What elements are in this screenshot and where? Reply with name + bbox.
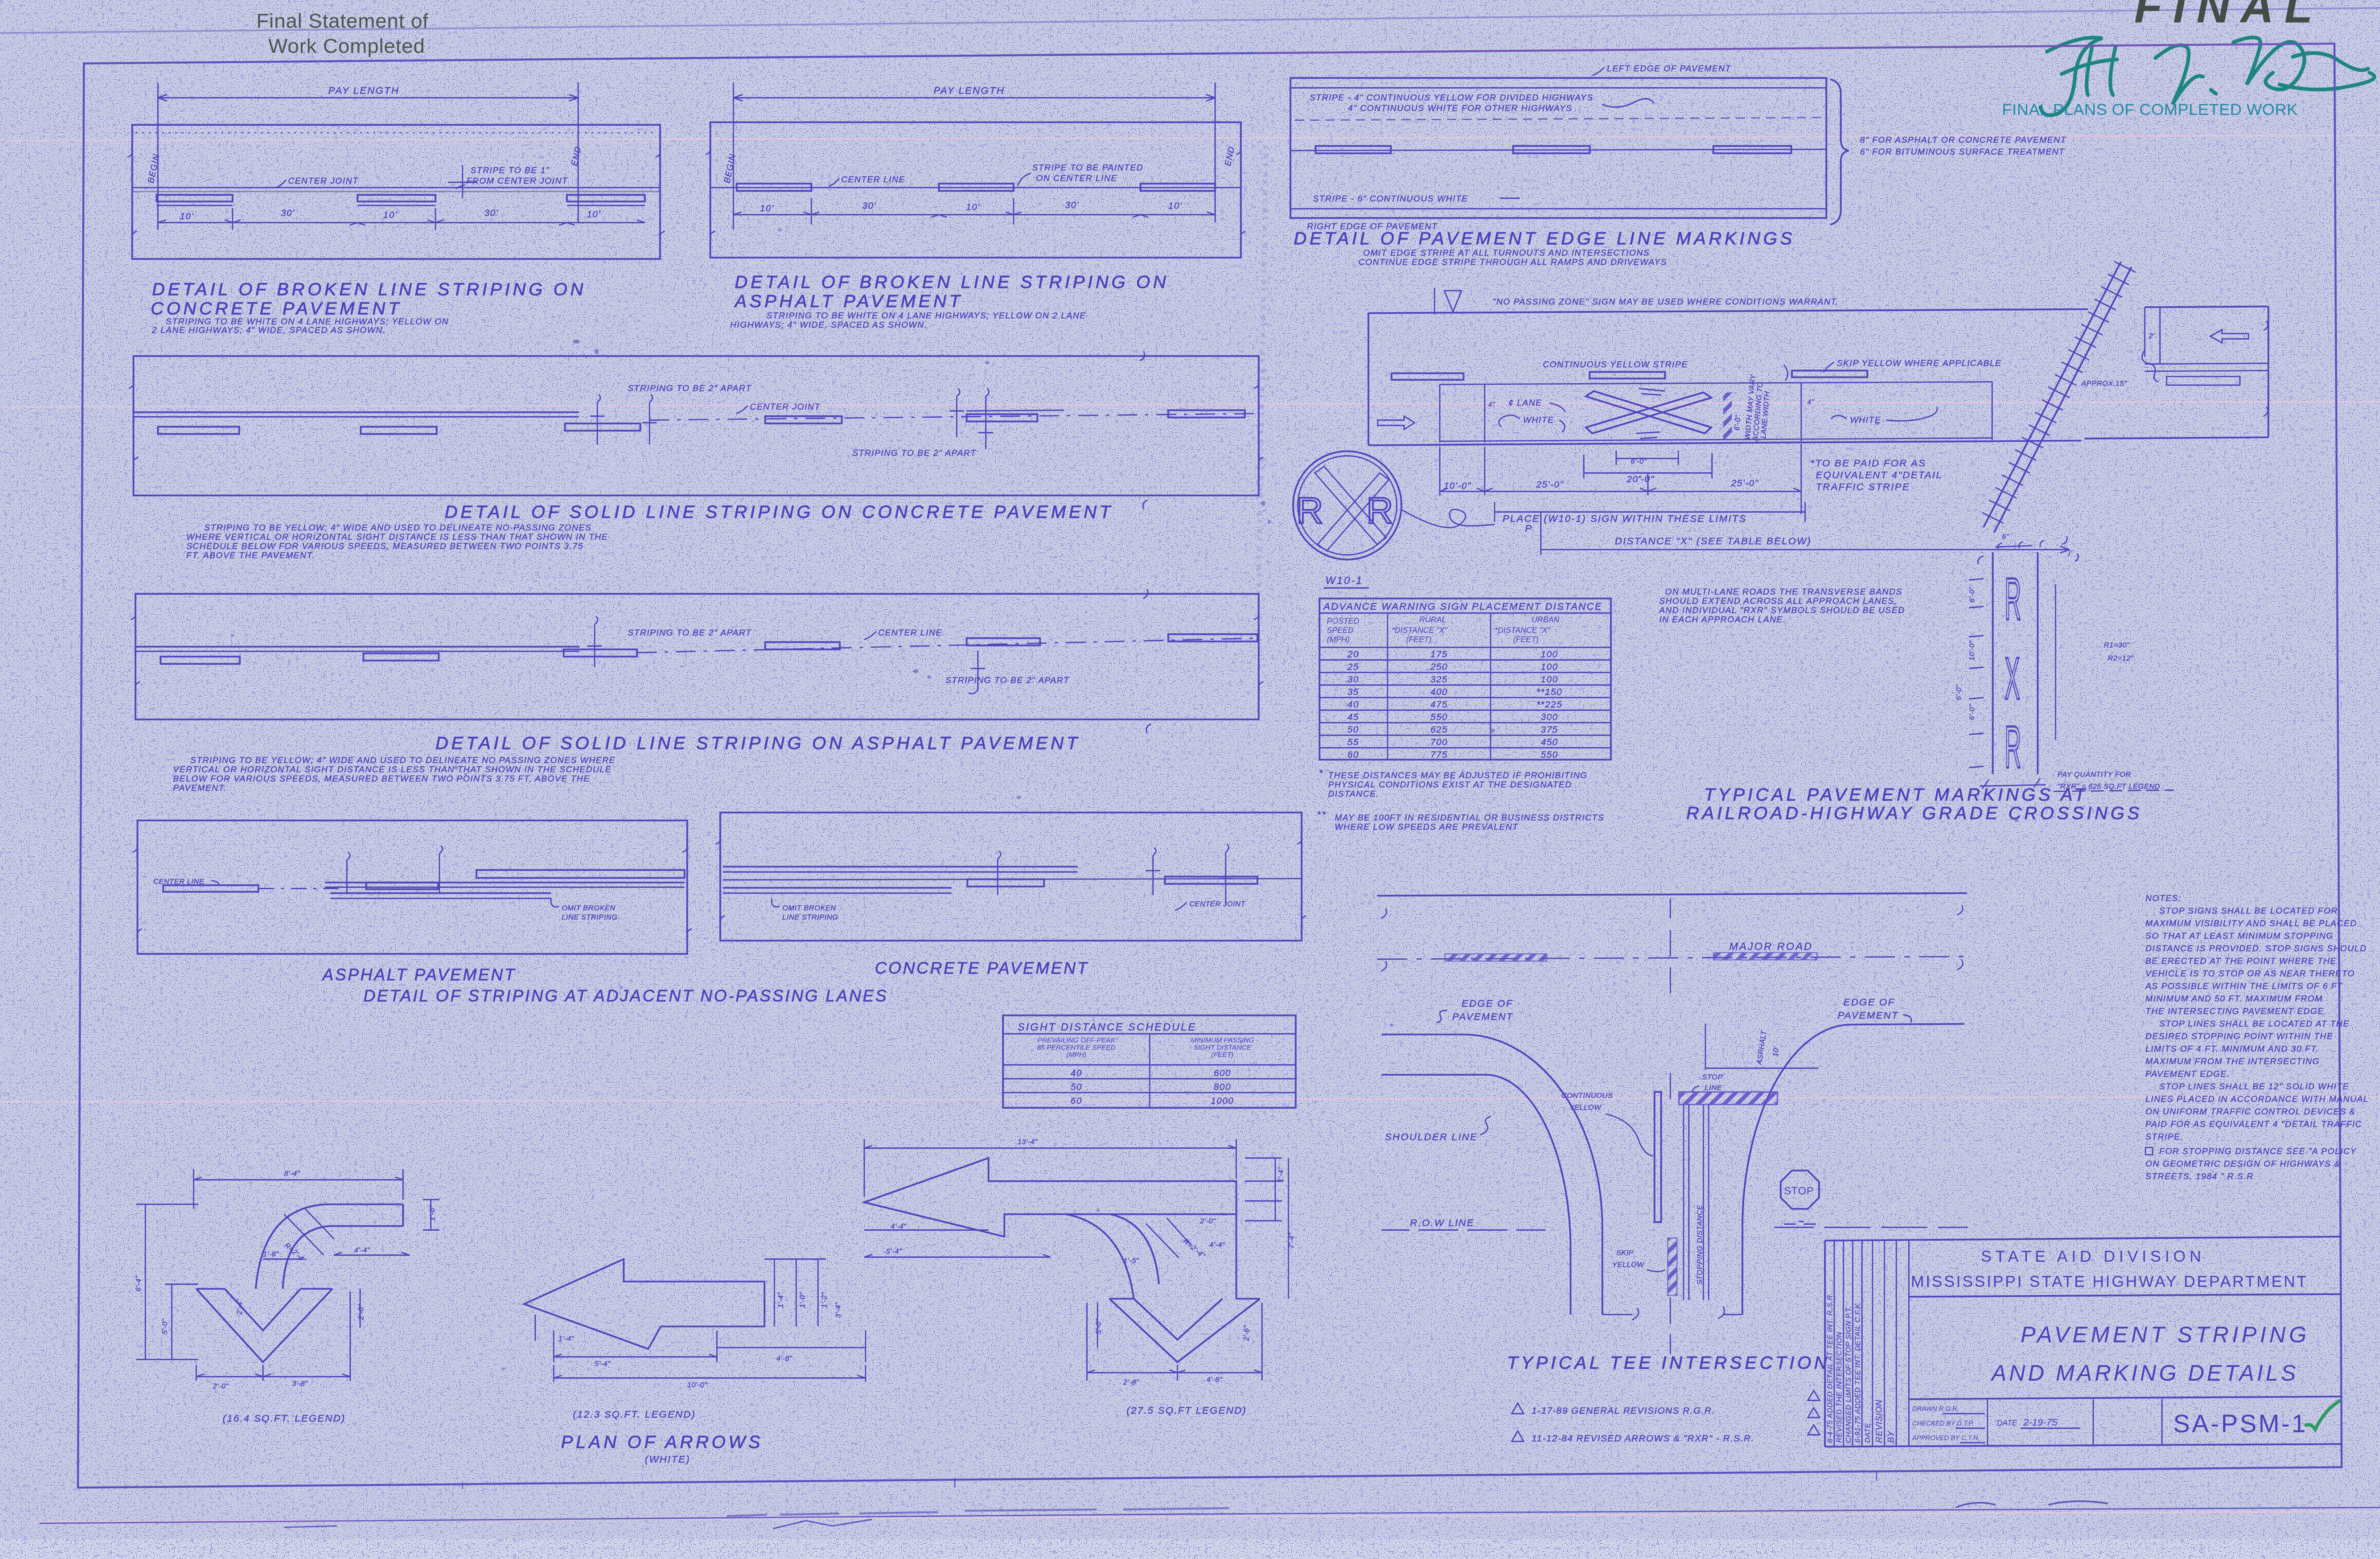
svg-text:*: * <box>1319 768 1323 779</box>
svg-text:2'-0": 2'-0" <box>212 1383 229 1391</box>
svg-text:6'-0": 6'-0" <box>1968 586 1976 602</box>
svg-text:SCHEDULE BELOW FOR VARIOUS SPE: SCHEDULE BELOW FOR VARIOUS SPEEDS, MEASU… <box>186 541 583 551</box>
svg-text:STRIPING TO BE WHITE ON 4 LANE: STRIPING TO BE WHITE ON 4 LANE HIGHWAYS;… <box>766 310 1086 320</box>
svg-text:R: R <box>1366 489 1393 531</box>
svg-text:10': 10' <box>1168 200 1183 211</box>
svg-text:STRIPING TO BE YELLOW; 4" WIDE: STRIPING TO BE YELLOW; 4" WIDE AND USED … <box>204 523 591 532</box>
svg-text:YELLOW: YELLOW <box>1569 1104 1602 1112</box>
svg-text:5'-4": 5'-4" <box>595 1360 611 1368</box>
svg-text:NOTES:: NOTES: <box>2145 893 2181 903</box>
svg-text:(FEET): (FEET) <box>1513 635 1539 644</box>
svg-text:4": 4" <box>1807 398 1815 406</box>
svg-text:25: 25 <box>1347 661 1359 672</box>
svg-text:40: 40 <box>1070 1068 1082 1078</box>
svg-text:6-91-75 ADDED TEE INT. DETAIL: 6-91-75 ADDED TEE INT. DETAIL C.F.K. <box>1854 1301 1862 1443</box>
svg-text:PAVEMENT: PAVEMENT <box>1452 1011 1514 1023</box>
svg-text:3'-8": 3'-8" <box>292 1380 309 1388</box>
svg-text:ASPHALT PAVEMENT: ASPHALT PAVEMENT <box>321 966 516 984</box>
svg-text:1'-0": 1'-0" <box>799 1291 807 1308</box>
svg-text:10': 10' <box>760 203 774 213</box>
svg-text:CENTER LINE: CENTER LINE <box>841 174 905 184</box>
svg-text:DISTANCE.: DISTANCE. <box>1328 789 1379 799</box>
svg-text:¢ LANE: ¢ LANE <box>1508 398 1542 408</box>
svg-text:4" CONTINUOUS WHITE FOR OTHER: 4" CONTINUOUS WHITE FOR OTHER HIGHWAYS <box>1348 103 1573 113</box>
svg-text:R.O.W LINE: R.O.W LINE <box>1410 1217 1475 1229</box>
svg-text:STOPPING DISTANCE: STOPPING DISTANCE <box>1696 1204 1704 1285</box>
svg-text:375: 375 <box>1541 724 1558 735</box>
svg-text:R2=12": R2=12" <box>2108 655 2134 663</box>
svg-text:YELLOW: YELLOW <box>1612 1261 1645 1269</box>
svg-text:CHANGED LIMITS OF STOP SIGN P: CHANGED LIMITS OF STOP SIGN P.T. <box>1845 1305 1853 1443</box>
svg-text:STRIPE - 4" CONTINUOUS YELLOW: STRIPE - 4" CONTINUOUS YELLOW FOR DIVIDE… <box>1310 92 1594 102</box>
svg-text:775: 775 <box>1431 749 1448 760</box>
svg-text:(MPH): (MPH) <box>1327 635 1350 644</box>
svg-text:4'-4": 4'-4" <box>891 1223 907 1231</box>
svg-text:PAY QUANTITY FOR: PAY QUANTITY FOR <box>2058 771 2131 779</box>
svg-text:BELOW FOR VARIOUS SPEEDS, MEAS: BELOW FOR VARIOUS SPEEDS, MEASURED BETWE… <box>173 774 590 783</box>
svg-text:CONTINUE EDGE STRIPE THROUGH A: CONTINUE EDGE STRIPE THROUGH ALL RAMPS A… <box>1358 257 1667 267</box>
svg-text:PAVEMENT: PAVEMENT <box>1838 1010 1899 1021</box>
svg-text:R: R <box>2005 714 2021 780</box>
svg-text:600: 600 <box>1214 1068 1231 1078</box>
svg-text:STRIPE.: STRIPE. <box>2145 1132 2184 1142</box>
svg-text:DETAIL OF BROKEN LINE STRIPING: DETAIL OF BROKEN LINE STRIPING ON <box>152 279 586 299</box>
svg-text:100: 100 <box>1541 674 1558 684</box>
svg-text:4'-4": 4'-4" <box>1209 1241 1226 1249</box>
svg-text:**: ** <box>1317 809 1327 820</box>
svg-text:FROM CENTER JOINT: FROM CENTER JOINT <box>466 176 568 186</box>
svg-text:25'-0": 25'-0" <box>1730 478 1759 488</box>
svg-text:APPROVED BY C.T.H.: APPROVED BY C.T.H. <box>1912 1435 1980 1442</box>
svg-text:175: 175 <box>1431 649 1448 659</box>
svg-text:DESIRED STOPPING POINT WITHIN: DESIRED STOPPING POINT WITHIN THE <box>2145 1031 2333 1041</box>
svg-text:ASPHALT PAVEMENT: ASPHALT PAVEMENT <box>733 291 963 311</box>
svg-text:10': 10' <box>1771 1046 1781 1058</box>
svg-text:MAY BE 100FT IN RESIDENTIAL OR: MAY BE 100FT IN RESIDENTIAL OR BUSINESS … <box>1335 813 1604 822</box>
svg-text:SKIP YELLOW WHERE APPLICABLE: SKIP YELLOW WHERE APPLICABLE <box>1837 358 2001 368</box>
svg-text:(16.4 SQ.FT. LEGEND): (16.4 SQ.FT. LEGEND) <box>223 1413 346 1424</box>
svg-text:RAILROAD-HIGHWAY GRADE CROSSIN: RAILROAD-HIGHWAY GRADE CROSSINGS <box>1686 803 2142 823</box>
svg-text:3'-4": 3'-4" <box>835 1301 842 1318</box>
svg-text:20'-0": 20'-0" <box>1626 474 1655 484</box>
svg-text:P: P <box>1525 523 1533 534</box>
svg-text:PAY LENGTH: PAY LENGTH <box>934 85 1005 96</box>
svg-text:2'-4": 2'-4" <box>236 1298 244 1315</box>
svg-text:AS POSSIBLE WITHIN THE LIMITS: AS POSSIBLE WITHIN THE LIMITS OF 6 FT <box>2145 981 2343 991</box>
svg-text:ADVANCE WARNING SIGN PLACEMENT: ADVANCE WARNING SIGN PLACEMENT DISTANCE <box>1323 601 1602 612</box>
svg-text:URBAN: URBAN <box>1532 615 1559 624</box>
svg-text:THESE DISTANCES MAY BE ADJUSTE: THESE DISTANCES MAY BE ADJUSTED IF PROHI… <box>1328 770 1588 780</box>
svg-text:6'-4": 6'-4" <box>135 1275 143 1291</box>
svg-text:MAJOR ROAD: MAJOR ROAD <box>1729 941 1813 953</box>
svg-text:WHERE LOW SPEEDS ARE PREVALENT: WHERE LOW SPEEDS ARE PREVALENT <box>1335 822 1518 832</box>
svg-text:100: 100 <box>1541 649 1558 659</box>
svg-text:STATE AID DIVISION: STATE AID DIVISION <box>1981 1248 2205 1266</box>
svg-text:10': 10' <box>180 211 194 221</box>
svg-text:CHECKED BY D.T.P.: CHECKED BY D.T.P. <box>1912 1420 1974 1428</box>
svg-text:ON GEOMETRIC DESIGN OF HIGHWAY: ON GEOMETRIC DESIGN OF HIGHWAYS & <box>2145 1159 2340 1169</box>
svg-text:1'-4": 1'-4" <box>1277 1166 1285 1182</box>
svg-text:60: 60 <box>1347 749 1359 760</box>
svg-text:4'-4": 4'-4" <box>354 1247 371 1254</box>
svg-text:DISTANCE IS PROVIDED. STOP SIG: DISTANCE IS PROVIDED. STOP SIGNS SHOULD <box>2145 943 2367 953</box>
svg-text:MAXIMUM VISIBILITY AND SHALL B: MAXIMUM VISIBILITY AND SHALL BE PLACED <box>2145 918 2357 928</box>
svg-text:STRIPING TO BE YELLOW; 4" WIDE: STRIPING TO BE YELLOW; 4" WIDE AND USED … <box>190 755 616 765</box>
svg-text:SO THAT AT LEAST MINIMUM STOPP: SO THAT AT LEAST MINIMUM STOPPING <box>2145 931 2334 941</box>
svg-text:FOR STOPPING DISTANCE SEE "A P: FOR STOPPING DISTANCE SEE "A POLICY <box>2159 1146 2357 1156</box>
svg-text:1'-2": 1'-2" <box>821 1291 829 1308</box>
svg-text:475: 475 <box>1431 699 1448 709</box>
svg-text:WHITE: WHITE <box>1523 415 1554 425</box>
svg-text:VERTICAL OR HORIZONTAL SIGHT D: VERTICAL OR HORIZONTAL SIGHT DISTANCE IS… <box>173 764 612 774</box>
svg-text:450: 450 <box>1541 737 1558 747</box>
svg-text:4": 4" <box>1488 401 1496 409</box>
svg-text:WHERE VERTICAL OR HORIZONTAL S: WHERE VERTICAL OR HORIZONTAL SIGHT DISTA… <box>186 532 608 542</box>
svg-text:"NO PASSING ZONE" SIGN MAY BE: "NO PASSING ZONE" SIGN MAY BE USED WHERE… <box>1493 297 1839 307</box>
svg-text:CENTER JOINT: CENTER JOINT <box>1189 900 1246 908</box>
svg-text:ON UNIFORM TRAFFIC CONTROL DEV: ON UNIFORM TRAFFIC CONTROL DEVICES & <box>2145 1106 2356 1116</box>
svg-text:X: X <box>2005 645 2020 711</box>
svg-text:PAY LENGTH: PAY LENGTH <box>328 85 400 96</box>
svg-text:50: 50 <box>1070 1081 1082 1092</box>
svg-text:APPROX.15°: APPROX.15° <box>2081 380 2128 388</box>
svg-text:10': 10' <box>966 201 981 212</box>
svg-text:STOP: STOP <box>1702 1073 1723 1081</box>
svg-text:6'-0": 6'-0" <box>1733 414 1742 431</box>
svg-text:AND INDIVIDUAL "RXR" SYMBOLS S: AND INDIVIDUAL "RXR" SYMBOLS SHOULD BE U… <box>1658 605 1905 615</box>
svg-text:"RXR" = 625 SQ.FT LEGEND: "RXR" = 625 SQ.FT LEGEND <box>2058 783 2160 791</box>
svg-text:STRIPING TO BE 2" APART: STRIPING TO BE 2" APART <box>852 448 977 458</box>
svg-text:STOP SIGNS SHALL BE LOCATED FO: STOP SIGNS SHALL BE LOCATED FOR <box>2159 906 2338 916</box>
svg-text:35: 35 <box>1347 686 1359 697</box>
svg-text:325: 325 <box>1431 674 1448 684</box>
svg-text:300: 300 <box>1541 711 1558 722</box>
svg-text:1'-0": 1'-0" <box>429 1204 437 1221</box>
svg-text:CENTER LINE: CENTER LINE <box>878 628 942 637</box>
svg-text:STRIPE TO BE 1": STRIPE TO BE 1" <box>470 165 550 175</box>
svg-text:7'-4": 7'-4" <box>1288 1232 1296 1249</box>
svg-text:LINES PLACED IN ACCORDANCE WIT: LINES PLACED IN ACCORDANCE WITH MANUAL <box>2145 1094 2369 1104</box>
svg-text:550: 550 <box>1541 749 1558 760</box>
svg-text:1'-5": 1'-5" <box>1123 1257 1140 1265</box>
svg-text:30': 30' <box>1065 199 1080 210</box>
svg-text:STRIPE - 6" CONTINUOUS WHITE: STRIPE - 6" CONTINUOUS WHITE <box>1313 194 1468 203</box>
svg-text:FINAL PLANS OF COMPLETED WORK: FINAL PLANS OF COMPLETED WORK <box>2002 101 2298 119</box>
svg-text:EQUIVALENT 4"DETAIL: EQUIVALENT 4"DETAIL <box>1816 470 1943 481</box>
svg-text:(12.3 SQ.FT. LEGEND): (12.3 SQ.FT. LEGEND) <box>573 1409 696 1420</box>
svg-text:2'-8": 2'-8" <box>1123 1379 1140 1387</box>
svg-text:EDGE OF: EDGE OF <box>1843 997 1895 1008</box>
svg-text:1'-4": 1'-4" <box>777 1291 785 1308</box>
svg-text:CENTER JOINT: CENTER JOINT <box>288 176 359 186</box>
svg-text:2'-0": 2'-0" <box>357 1303 365 1321</box>
svg-text:2-19-75: 2-19-75 <box>2023 1417 2058 1428</box>
svg-text:4'-8": 4'-8" <box>1207 1376 1223 1384</box>
svg-text:STOP: STOP <box>1784 1186 1814 1197</box>
svg-text:11-12-84 REVISED ARROWS & "RX: 11-12-84 REVISED ARROWS & "RXR" - R.S.R. <box>1532 1433 1754 1443</box>
svg-text:SHOULD EXTEND ACROSS ALL APPRO: SHOULD EXTEND ACROSS ALL APPROACH LANES, <box>1659 596 1898 606</box>
svg-text:2'-0": 2'-0" <box>1199 1217 1216 1225</box>
svg-text:6" FOR BITUMINOUS SURFACE TREA: 6" FOR BITUMINOUS SURFACE TREATMENT <box>1860 147 2065 157</box>
svg-text:(WHITE): (WHITE) <box>645 1454 690 1465</box>
svg-text:HIGHWAYS; 4" WIDE, SPACED AS S: HIGHWAYS; 4" WIDE, SPACED AS SHOWN. <box>730 320 927 330</box>
svg-text:SPEED: SPEED <box>1327 626 1354 635</box>
svg-text:*DISTANCE "X": *DISTANCE "X" <box>1392 626 1448 635</box>
svg-text:FINAL: FINAL <box>2134 0 2323 32</box>
svg-text:DETAIL OF SOLID LINE STRIPING: DETAIL OF SOLID LINE STRIPING ON ASPHALT… <box>435 733 1080 753</box>
svg-text:STRIPING TO BE 2" APART: STRIPING TO BE 2" APART <box>628 628 752 637</box>
svg-text:TRAFFIC STRIPE: TRAFFIC STRIPE <box>1816 482 1910 493</box>
svg-text:8'-4": 8'-4" <box>284 1170 301 1178</box>
svg-text:5'-0": 5'-0" <box>1095 1318 1103 1334</box>
svg-text:LIMITS OF 4 FT. MINIMUM AND 30: LIMITS OF 4 FT. MINIMUM AND 30 FT. <box>2145 1044 2319 1054</box>
svg-text:6'-0": 6'-0" <box>1955 684 1963 700</box>
svg-text:CONCRETE PAVEMENT: CONCRETE PAVEMENT <box>875 959 1089 978</box>
svg-text:(FEET): (FEET) <box>1211 1051 1234 1059</box>
svg-text:10'-0": 10'-0" <box>1444 480 1471 491</box>
svg-text:8-4-75 ADDED DETAIL AT TEE INT: 8-4-75 ADDED DETAIL AT TEE INT. R.S.R. <box>1826 1293 1834 1443</box>
svg-text:W10-1: W10-1 <box>1325 575 1363 587</box>
svg-text:10'-0": 10'-0" <box>1968 640 1976 661</box>
svg-text:45: 45 <box>1347 711 1359 722</box>
svg-text:MISSISSIPPI STATE HIGHWAY D: MISSISSIPPI STATE HIGHWAY DEPARTMENT <box>1911 1273 2308 1291</box>
svg-text:30': 30' <box>862 200 877 211</box>
svg-text:ON MULTI-LANE ROADS THE TRANSV: ON MULTI-LANE ROADS THE TRANSVERSE BANDS <box>1665 587 1902 597</box>
svg-text:LINE STRIPING: LINE STRIPING <box>782 914 838 922</box>
svg-text:REVISION: REVISION <box>1874 1399 1884 1443</box>
svg-text:BY: BY <box>1886 1430 1896 1443</box>
svg-text:)′: )′ <box>2067 549 2073 557</box>
svg-text:DISTANCE "X" (SEE TABLE BELOW): DISTANCE "X" (SEE TABLE BELOW) <box>1615 536 1812 547</box>
svg-text:PAVEMENT.: PAVEMENT. <box>173 783 227 793</box>
svg-text:6": 6" <box>2002 533 2010 541</box>
svg-text:OMIT EDGE STRIPE AT ALL TURNOU: OMIT EDGE STRIPE AT ALL TURNOUTS AND INT… <box>1363 248 1650 258</box>
svg-text:30': 30' <box>281 207 295 218</box>
svg-text:60: 60 <box>1070 1095 1082 1106</box>
svg-text:STRIPING TO BE 2" APART: STRIPING TO BE 2" APART <box>628 383 752 393</box>
svg-text:10': 10' <box>383 209 398 220</box>
svg-text:30: 30 <box>1347 674 1359 684</box>
svg-text:55: 55 <box>1347 737 1359 747</box>
svg-text:FT. ABOVE THE PAVEMENT.: FT. ABOVE THE PAVEMENT. <box>186 550 315 560</box>
svg-text:(FEET): (FEET) <box>1406 635 1432 644</box>
svg-text:STRIPING TO BE 2" APART: STRIPING TO BE 2" APART <box>946 675 1070 685</box>
svg-text:STOP LINES SHALL BE 12" SOLID: STOP LINES SHALL BE 12" SOLID WHITE <box>2159 1081 2349 1091</box>
svg-text:OMIT BROKEN: OMIT BROKEN <box>782 904 836 912</box>
svg-text:TYPICAL TEE INTERSECTION: TYPICAL TEE INTERSECTION <box>1507 1353 1830 1373</box>
svg-text:2 LANE HIGHWAYS; 4" WIDE, SPAC: 2 LANE HIGHWAYS; 4" WIDE, SPACED AS SHOW… <box>151 325 386 335</box>
svg-text:MAXIMUM FROM THE INTERSECTING: MAXIMUM FROM THE INTERSECTING <box>2145 1056 2320 1066</box>
svg-text:R: R <box>1296 489 1323 531</box>
svg-text:VEHICLE IS TO STOP OR AS NEAR: VEHICLE IS TO STOP OR AS NEAR THERETO <box>2145 968 2355 978</box>
svg-text:625: 625 <box>1431 724 1448 735</box>
svg-text:THE INTERSECTING PAVEMENT EDGE: THE INTERSECTING PAVEMENT EDGE. <box>2145 1006 2327 1016</box>
svg-text:RURAL: RURAL <box>1419 615 1446 624</box>
svg-text:CENTER JOINT: CENTER JOINT <box>750 402 821 412</box>
svg-text:1'-8": 1'-8" <box>263 1251 279 1258</box>
svg-text:(27.5 SQ.FT LEGEND): (27.5 SQ.FT LEGEND) <box>1127 1405 1247 1416</box>
svg-text:550: 550 <box>1431 711 1448 722</box>
svg-text:LINE STRIPING: LINE STRIPING <box>562 914 618 922</box>
svg-text:5'-4": 5'-4" <box>886 1248 903 1256</box>
svg-text:25'-0": 25'-0" <box>1536 479 1564 489</box>
svg-text:DETAIL OF SOLID LINE STRIPING: DETAIL OF SOLID LINE STRIPING ON CONCRET… <box>445 502 1113 522</box>
svg-text:PLAN OF ARROWS: PLAN OF ARROWS <box>561 1432 763 1452</box>
svg-text:SHOULDER LINE: SHOULDER LINE <box>1385 1132 1477 1143</box>
svg-text:SA-PSM-1: SA-PSM-1 <box>2173 1410 2307 1438</box>
svg-text:OMIT BROKEN: OMIT BROKEN <box>562 904 615 912</box>
svg-text:DRAWN R.G.R.: DRAWN R.G.R. <box>1912 1406 1959 1413</box>
svg-text:DETAIL OF STRIPING AT ADJACENT: DETAIL OF STRIPING AT ADJACENT NO-PASSIN… <box>363 987 888 1005</box>
svg-text:PAID FOR AS EQUIVALENT 4 "DETA: PAID FOR AS EQUIVALENT 4 "DETAIL TRAFFIC <box>2145 1119 2362 1129</box>
svg-text:AND MARKING DETAILS: AND MARKING DETAILS <box>1990 1361 2299 1386</box>
svg-text:ON CENTER LINE: ON CENTER LINE <box>1036 173 1117 183</box>
svg-text:PAVEMENT EDGE.: PAVEMENT EDGE. <box>2145 1069 2230 1079</box>
svg-text:5'-0": 5'-0" <box>161 1318 169 1334</box>
svg-text:4'-8": 4'-8" <box>776 1355 793 1363</box>
svg-text:50: 50 <box>1347 724 1359 735</box>
svg-text:13'-4": 13'-4" <box>1018 1138 1038 1146</box>
svg-text:TYPICAL PAVEMENT MARKINGS AT: TYPICAL PAVEMENT MARKINGS AT <box>1704 785 2088 805</box>
svg-text:POSTED: POSTED <box>1327 616 1360 626</box>
svg-text:DETAIL OF BROKEN LINE STRIPING: DETAIL OF BROKEN LINE STRIPING ON <box>735 272 1169 292</box>
svg-text:EDGE OF: EDGE OF <box>1462 998 1513 1009</box>
svg-text:**150: **150 <box>1536 686 1562 697</box>
svg-text:10'-0": 10'-0" <box>687 1381 708 1389</box>
svg-text:CONCRETE PAVEMENT: CONCRETE PAVEMENT <box>151 299 402 318</box>
svg-text:R1=30": R1=30" <box>2104 641 2130 649</box>
svg-text:IN EACH APPROACH LANE.: IN EACH APPROACH LANE. <box>1659 614 1786 624</box>
svg-text:700: 700 <box>1431 737 1448 747</box>
svg-text:BE ERECTED AT THE POINT WHERE: BE ERECTED AT THE POINT WHERE THE <box>2145 956 2336 966</box>
svg-text:**225: **225 <box>1536 699 1562 709</box>
svg-text:800: 800 <box>1214 1081 1231 1092</box>
svg-text:LINE: LINE <box>1705 1084 1722 1092</box>
svg-text:6'-0": 6'-0" <box>1631 458 1647 466</box>
svg-text:1'-4": 1'-4" <box>558 1335 575 1343</box>
svg-text:8" FOR ASPHALT OR CONCRETE PAV: 8" FOR ASPHALT OR CONCRETE PAVEMENT <box>1860 135 2066 145</box>
svg-text:PHYSICAL CONDITIONS EXIST AT T: PHYSICAL CONDITIONS EXIST AT THE DESIGNA… <box>1328 779 1572 789</box>
svg-text:PAVEMENT STRIPING: PAVEMENT STRIPING <box>2021 1323 2310 1348</box>
svg-text:2': 2' <box>2148 332 2155 340</box>
svg-text:REVISED THE INTERSECTION: REVISED THE INTERSECTION <box>1836 1332 1843 1443</box>
svg-text:LEFT EDGE OF PAVEMENT: LEFT EDGE OF PAVEMENT <box>1607 63 1731 73</box>
svg-text:STREETS, 1984 " R.S.R: STREETS, 1984 " R.S.R <box>2145 1171 2254 1181</box>
svg-text:250: 250 <box>1430 661 1448 672</box>
svg-text:Work Completed: Work Completed <box>268 34 425 57</box>
svg-text:*DISTANCE "X": *DISTANCE "X" <box>1495 626 1551 635</box>
svg-text:PLACE (W10-1) SIGN WITHIN THES: PLACE (W10-1) SIGN WITHIN THESE LIMITS <box>1503 513 1747 525</box>
svg-text:*TO BE PAID FOR AS: *TO BE PAID FOR AS <box>1810 458 1926 469</box>
svg-text:6'-0": 6'-0" <box>1968 704 1976 720</box>
svg-text:10': 10' <box>587 209 601 219</box>
svg-text:40: 40 <box>1347 699 1359 709</box>
svg-text:SIGHT DISTANCE SCHEDULE: SIGHT DISTANCE SCHEDULE <box>1018 1022 1197 1033</box>
svg-text:SKIP: SKIP <box>1616 1249 1634 1257</box>
svg-text:30': 30' <box>484 207 499 218</box>
svg-text:STOP LINES SHALL BE LOCATED AT: STOP LINES SHALL BE LOCATED AT THE <box>2159 1019 2350 1029</box>
svg-text:1-17-89 GENERAL REVISIONS: 1-17-89 GENERAL REVISIONS R.G.R. <box>1532 1405 1715 1416</box>
svg-text:20: 20 <box>1347 649 1359 659</box>
svg-text:STRIPE TO BE PAINTED: STRIPE TO BE PAINTED <box>1032 163 1143 172</box>
svg-text:DETAIL OF PAVEMENT EDGE LINE M: DETAIL OF PAVEMENT EDGE LINE MARKINGS <box>1294 229 1795 248</box>
svg-text:400: 400 <box>1431 686 1448 697</box>
svg-text:(MPH): (MPH) <box>1066 1051 1086 1059</box>
svg-text:DATE: DATE <box>1997 1418 2018 1428</box>
svg-text:CONTINUOUS YELLOW STRIPE: CONTINUOUS YELLOW STRIPE <box>1543 359 1688 369</box>
svg-text:Final Statement of: Final Statement of <box>256 9 429 32</box>
svg-text:CONTINUOUS: CONTINUOUS <box>1561 1092 1613 1100</box>
svg-text:R: R <box>2005 566 2021 632</box>
svg-text:2'-6": 2'-6" <box>1243 1324 1251 1342</box>
svg-text:100: 100 <box>1541 661 1558 672</box>
svg-text:MINIMUM AND 50 FT. MAXIMUM FRO: MINIMUM AND 50 FT. MAXIMUM FROM <box>2145 994 2323 1003</box>
svg-text:1000: 1000 <box>1210 1095 1234 1106</box>
svg-text:DATE: DATE <box>1864 1423 1872 1443</box>
